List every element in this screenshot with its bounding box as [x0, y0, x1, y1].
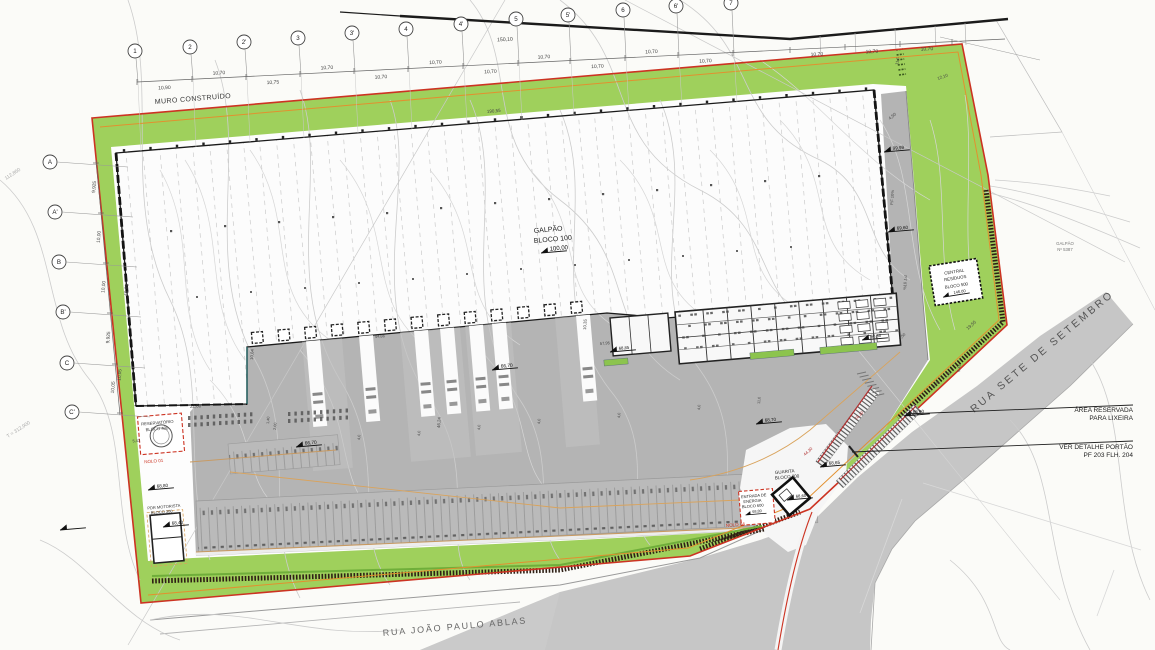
svg-text:Nº 5387: Nº 5387 — [1057, 247, 1073, 252]
svg-text:4,0: 4,0 — [357, 435, 361, 441]
svg-text:150,10: 150,10 — [497, 37, 513, 44]
svg-text:6: 6 — [621, 7, 625, 14]
svg-text:57,95: 57,95 — [600, 340, 611, 346]
svg-text:44,86: 44,86 — [375, 333, 386, 339]
svg-text:%10 J.d: %10 J.d — [902, 275, 908, 290]
svg-text:46,24: 46,24 — [436, 416, 442, 428]
svg-text:2': 2' — [242, 39, 247, 46]
svg-text:4,0: 4,0 — [537, 419, 541, 425]
svg-text:22,00: 22,00 — [190, 403, 202, 409]
svg-text:10,70: 10,70 — [321, 65, 334, 72]
svg-text:68,40: 68,40 — [172, 520, 184, 526]
svg-text:B': B' — [60, 309, 65, 316]
svg-text:GALPÃO: GALPÃO — [1056, 241, 1074, 246]
svg-text:10,70: 10,70 — [484, 69, 497, 76]
svg-text:5': 5' — [566, 12, 571, 19]
svg-text:48,95: 48,95 — [123, 283, 130, 296]
svg-text:2,00: 2,00 — [273, 422, 278, 430]
svg-text:10,70: 10,70 — [866, 49, 879, 56]
svg-text:4,0: 4,0 — [417, 431, 421, 437]
svg-text:66,70: 66,70 — [501, 363, 514, 370]
svg-text:66,70: 66,70 — [305, 440, 318, 447]
svg-text:5: 5 — [514, 16, 518, 23]
svg-text:4,0: 4,0 — [477, 425, 481, 431]
svg-text:C: C — [65, 360, 70, 367]
svg-text:6': 6' — [674, 3, 679, 10]
svg-text:10,70: 10,70 — [699, 58, 712, 65]
svg-text:10,05: 10,05 — [110, 381, 117, 394]
svg-text:10,35: 10,35 — [582, 318, 588, 330]
svg-text:10,75: 10,75 — [267, 79, 280, 86]
svg-text:2: 2 — [188, 44, 192, 51]
svg-text:PF 203 FLH. 204: PF 203 FLH. 204 — [1084, 452, 1134, 459]
svg-text:10,70: 10,70 — [429, 59, 442, 66]
svg-text:68,80: 68,80 — [752, 509, 762, 514]
svg-text:1,40: 1,40 — [266, 416, 271, 424]
svg-text:10,70: 10,70 — [213, 70, 226, 77]
svg-text:10,70: 10,70 — [811, 51, 824, 58]
svg-text:VER DETALHE PORTÃO: VER DETALHE PORTÃO — [1059, 442, 1133, 451]
svg-text:4,0: 4,0 — [617, 413, 621, 419]
svg-text:5,43: 5,43 — [957, 364, 962, 372]
svg-text:10,90: 10,90 — [158, 85, 171, 92]
svg-text:10,00: 10,00 — [100, 280, 107, 293]
svg-text:10,70: 10,70 — [375, 74, 388, 81]
svg-text:1: 1 — [133, 48, 137, 55]
svg-text:4': 4' — [459, 21, 464, 28]
svg-text:10,64: 10,64 — [249, 348, 255, 360]
svg-text:68,60: 68,60 — [796, 493, 808, 499]
svg-text:68,80: 68,80 — [157, 483, 169, 489]
svg-text:B: B — [57, 259, 61, 266]
svg-text:PARA LIXEIRA: PARA LIXEIRA — [1089, 415, 1133, 422]
svg-text:ÁREA RESERVADA: ÁREA RESERVADA — [1074, 405, 1133, 414]
svg-text:68,80: 68,80 — [871, 333, 883, 339]
svg-text:3: 3 — [296, 35, 300, 42]
svg-text:4: 4 — [404, 26, 408, 33]
svg-text:3': 3' — [350, 30, 355, 37]
svg-text:10,70: 10,70 — [538, 54, 551, 61]
svg-text:9,925: 9,925 — [105, 331, 112, 344]
svg-text:69,60: 69,60 — [897, 225, 909, 231]
svg-text:C': C' — [69, 409, 75, 416]
svg-text:10,05: 10,05 — [117, 368, 123, 380]
svg-text:10,70: 10,70 — [591, 63, 604, 70]
svg-text:68,65: 68,65 — [829, 460, 841, 466]
svg-text:4,0: 4,0 — [697, 405, 701, 411]
svg-text:7: 7 — [729, 0, 733, 7]
svg-text:68,85: 68,85 — [619, 345, 631, 351]
svg-text:10,70: 10,70 — [921, 46, 934, 53]
svg-text:68,70: 68,70 — [765, 417, 777, 423]
svg-text:A': A' — [52, 209, 57, 216]
svg-text:10,00: 10,00 — [96, 230, 103, 243]
svg-text:9,925: 9,925 — [91, 180, 98, 193]
svg-text:99,99: 99,99 — [893, 145, 905, 151]
svg-text:10,70: 10,70 — [645, 49, 658, 56]
svg-text:P.F 10%: P.F 10% — [889, 189, 895, 205]
svg-text:11,0: 11,0 — [757, 397, 761, 404]
svg-text:5,43: 5,43 — [132, 438, 141, 444]
